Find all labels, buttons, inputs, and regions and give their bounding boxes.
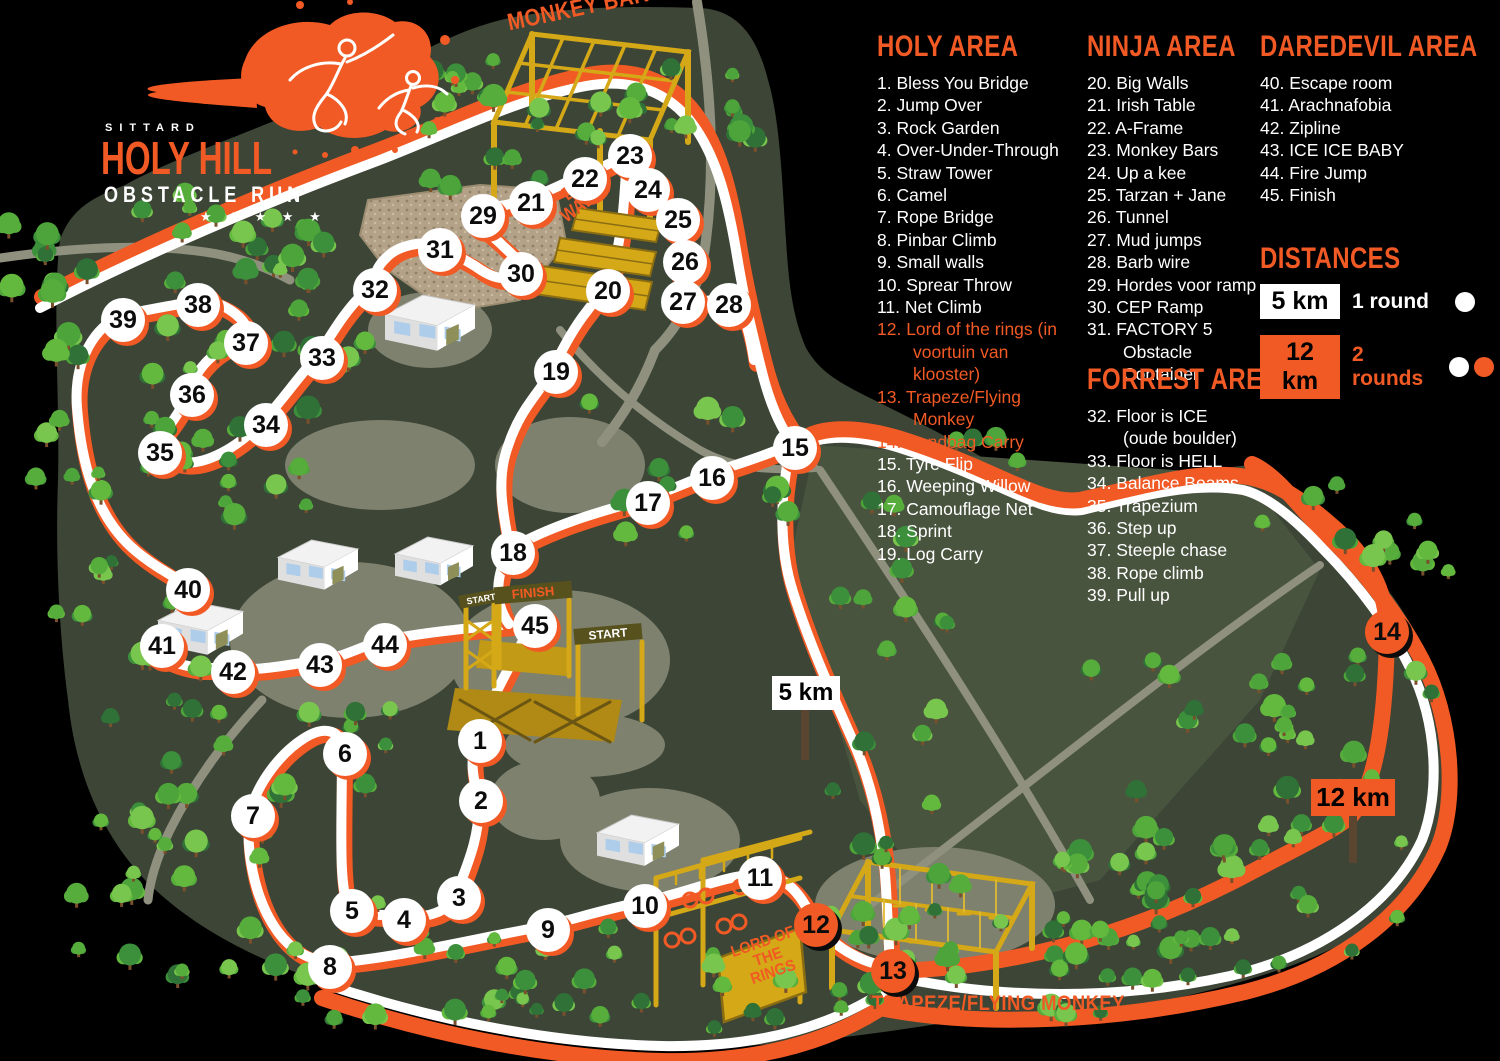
map-marker-11: 11 xyxy=(738,856,782,900)
map-marker-1: 1 xyxy=(458,719,502,763)
obstacle-list-item: 29. Hordes voor ramp xyxy=(1087,274,1265,296)
obstacle-list-item: 42. Zipline xyxy=(1260,117,1470,139)
orange-round-dot-icon xyxy=(1474,357,1494,377)
obstacle-list-item: 41. Arachnafobia xyxy=(1260,94,1470,116)
obstacle-list-item: 43. ICE ICE BABY xyxy=(1260,139,1470,161)
obstacle-list-item: 9. Small walls xyxy=(877,251,1077,273)
map-marker-2: 2 xyxy=(459,779,503,823)
map-marker-34: 34 xyxy=(244,403,288,447)
map-marker-26: 26 xyxy=(663,240,707,284)
white-round-dot-icon xyxy=(1455,292,1475,312)
distances-legend: DISTANCES 5 km 1 round 12 km 2 rounds xyxy=(1260,242,1490,415)
map-marker-14: 14 xyxy=(1365,610,1409,654)
map-marker-21: 21 xyxy=(509,181,553,225)
distance-12km-badge: 12 km xyxy=(1260,335,1340,399)
obstacle-list-item: 19. Log Carry xyxy=(877,543,1077,565)
obstacle-list-item: 44. Fire Jump xyxy=(1260,162,1470,184)
distance-5km-desc: 1 round xyxy=(1352,290,1429,314)
area-title-daredevil: DAREDEVIL AREA xyxy=(1260,30,1428,64)
obstacle-list-item: 6. Camel xyxy=(877,184,1077,206)
obstacle-list-item: 23. Monkey Bars xyxy=(1087,139,1265,161)
obstacle-list-item: 14. Sandbag Carry xyxy=(877,431,1077,453)
logo-title: HOLY HILL xyxy=(101,131,272,185)
map-marker-4: 4 xyxy=(382,898,426,942)
map-marker-15: 15 xyxy=(773,426,817,470)
obstacle-list-item: 12. Lord of the rings (in voortuin van k… xyxy=(877,318,1077,385)
map-marker-7: 7 xyxy=(231,794,275,838)
distance-5km-badge: 5 km xyxy=(1260,284,1340,319)
map-marker-5: 5 xyxy=(330,889,374,933)
map-marker-45: 45 xyxy=(513,604,557,648)
obstacle-list-item: 8. Pinbar Climb xyxy=(877,229,1077,251)
holy-hill-obstacle-run-map: SITTARD HOLY HILL OBSTACLE RUN ★ ★ ★ ★ ★… xyxy=(0,0,1500,1061)
map-marker-20: 20 xyxy=(586,269,630,313)
map-marker-6: 6 xyxy=(323,732,367,776)
logo-subtitle: OBSTACLE RUN xyxy=(104,182,305,208)
map-marker-39: 39 xyxy=(101,298,145,342)
map-marker-38: 38 xyxy=(176,283,220,327)
obstacle-list-item: 28. Barb wire xyxy=(1087,251,1265,273)
obstacle-list-item: 38. Rope climb xyxy=(1087,562,1241,584)
map-marker-31: 31 xyxy=(418,228,462,272)
obstacle-list-item: 18. Sprint xyxy=(877,520,1077,542)
logo-stars: ★ ★ ★ ★ ★ xyxy=(200,209,327,225)
obstacle-list-item: 27. Mud jumps xyxy=(1087,229,1265,251)
obstacle-list-item: 34. Balance Beams xyxy=(1087,472,1241,494)
obstacle-list-item: 26. Tunnel xyxy=(1087,206,1265,228)
map-marker-19: 19 xyxy=(534,350,578,394)
obstacle-list-item: 3. Rock Garden xyxy=(877,117,1077,139)
map-marker-9: 9 xyxy=(526,908,570,952)
map-marker-17: 17 xyxy=(626,481,670,525)
area-title-forrest: FORREST AREA xyxy=(1087,363,1210,397)
map-marker-18: 18 xyxy=(491,531,535,575)
white-round-dot-icon xyxy=(1449,357,1469,377)
obstacle-list-item: 16. Weeping Willow xyxy=(877,475,1077,497)
obstacle-list-item: 5. Straw Tower xyxy=(877,162,1077,184)
obstacle-list-item: 37. Steeple chase xyxy=(1087,539,1241,561)
obstacle-list-item: 2. Jump Over xyxy=(877,94,1077,116)
map-marker-36: 36 xyxy=(170,373,214,417)
obstacle-list-item: 35. Trapezium xyxy=(1087,495,1241,517)
area-title-ninja: NINJA AREA xyxy=(1087,30,1229,64)
map-marker-8: 8 xyxy=(308,945,352,989)
area-list-holy: HOLY AREA 1. Bless You Bridge2. Jump Ove… xyxy=(877,30,1077,565)
map-marker-35: 35 xyxy=(138,431,182,475)
obstacle-list-item: 36. Step up xyxy=(1087,517,1241,539)
obstacle-list-item: 7. Rope Bridge xyxy=(877,206,1077,228)
obstacle-list-item: 1. Bless You Bridge xyxy=(877,72,1077,94)
area-list-ninja: NINJA AREA 20. Big Walls21. Irish Table2… xyxy=(1087,30,1265,386)
map-marker-33: 33 xyxy=(300,336,344,380)
map-marker-32: 32 xyxy=(353,268,397,312)
obstacle-list-item: 4. Over-Under-Through xyxy=(877,139,1077,161)
distance-row-12km: 12 km 2 rounds xyxy=(1260,335,1490,399)
distances-title: DISTANCES xyxy=(1260,242,1444,276)
obstacle-list-item: 39. Pull up xyxy=(1087,584,1241,606)
distance-12km-desc: 2 rounds xyxy=(1352,343,1423,391)
obstacle-list-item: 32. Floor is ICE (oude boulder) xyxy=(1087,405,1241,450)
trapeze-label: TRAPEZE/FLYING MONKEY xyxy=(872,992,1125,1016)
map-marker-29: 29 xyxy=(461,194,505,238)
obstacle-list-item: 10. Sprear Throw xyxy=(877,274,1077,296)
event-logo: SITTARD HOLY HILL OBSTACLE RUN ★ ★ ★ ★ ★ xyxy=(95,15,405,230)
obstacle-list-item: 15. Tyre Flip xyxy=(877,453,1077,475)
obstacle-list-item: 30. CEP Ramp xyxy=(1087,296,1265,318)
map-marker-27: 27 xyxy=(661,280,705,324)
sign-12km: 12 km xyxy=(1311,779,1395,816)
map-marker-28: 28 xyxy=(707,283,751,327)
map-marker-40: 40 xyxy=(166,568,210,612)
obstacle-list-item: 21. Irish Table xyxy=(1087,94,1265,116)
area-title-holy: HOLY AREA xyxy=(877,30,1037,64)
map-marker-16: 16 xyxy=(690,456,734,500)
map-marker-44: 44 xyxy=(363,623,407,667)
map-marker-12: 12 xyxy=(794,903,838,947)
obstacle-list-item: 33. Floor is HELL xyxy=(1087,450,1241,472)
map-marker-41: 41 xyxy=(140,624,184,668)
obstacle-list-item: 25. Tarzan + Jane xyxy=(1087,184,1265,206)
obstacle-list-item: 13. Trapeze/Flying Monkey xyxy=(877,386,1077,431)
sign-5km: 5 km xyxy=(772,676,840,710)
map-marker-25: 25 xyxy=(656,198,700,242)
obstacle-list-item: 22. A-Frame xyxy=(1087,117,1265,139)
obstacle-list-item: 40. Escape room xyxy=(1260,72,1470,94)
map-marker-3: 3 xyxy=(437,876,481,920)
map-marker-43: 43 xyxy=(298,643,342,687)
obstacle-list-item: 17. Camouflage Net xyxy=(877,498,1077,520)
map-marker-10: 10 xyxy=(623,884,667,928)
obstacle-list-item: 45. Finish xyxy=(1260,184,1470,206)
map-marker-13: 13 xyxy=(871,949,915,993)
area-list-daredevil: DAREDEVIL AREA 40. Escape room41. Arachn… xyxy=(1260,30,1470,206)
map-marker-37: 37 xyxy=(224,321,268,365)
map-marker-42: 42 xyxy=(211,650,255,694)
obstacle-list-item: 20. Big Walls xyxy=(1087,72,1265,94)
obstacle-list-item: 24. Up a kee xyxy=(1087,162,1265,184)
distance-row-5km: 5 km 1 round xyxy=(1260,284,1490,319)
map-marker-22: 22 xyxy=(563,157,607,201)
obstacle-list-item: 11. Net Climb xyxy=(877,296,1077,318)
map-marker-30: 30 xyxy=(499,252,543,296)
area-list-forrest: FORREST AREA 32. Floor is ICE (oude boul… xyxy=(1087,363,1241,607)
